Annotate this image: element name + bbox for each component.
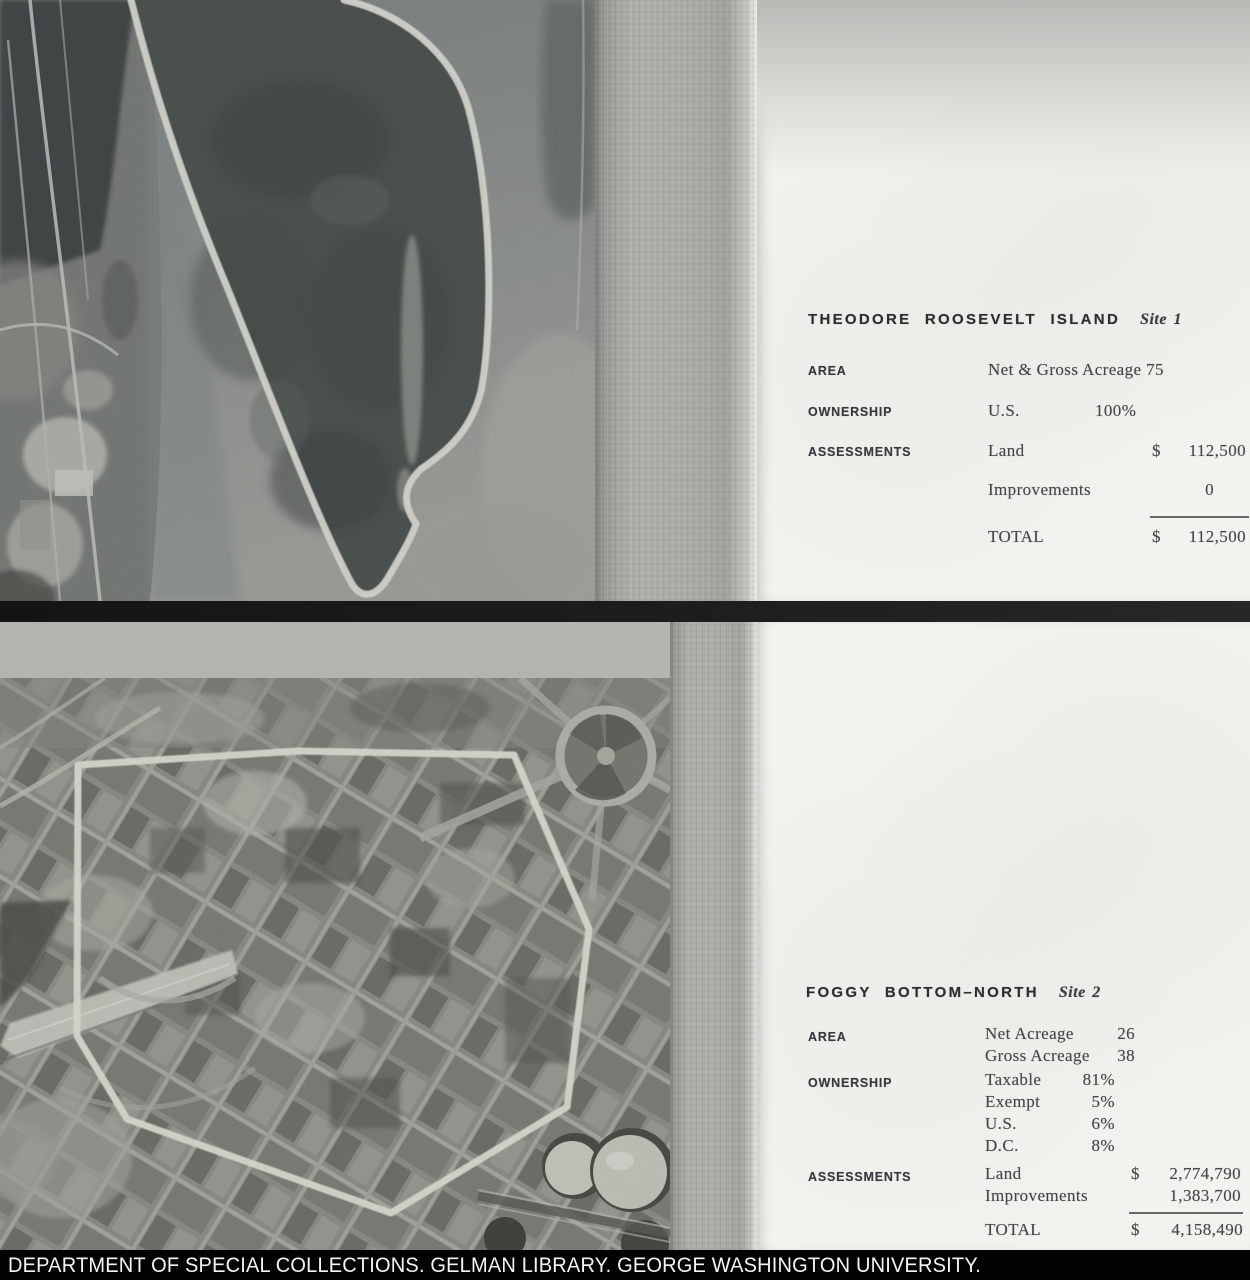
aerial-photo-foggy-bottom: [0, 678, 670, 1250]
site1-assessments-label: ASSESSMENTS: [808, 445, 911, 459]
site2-area-label: AREA: [808, 1030, 847, 1044]
site2-number: Site 2: [1059, 984, 1101, 1001]
site2-heading: FOGGY BOTTOM–NORTHSite 2: [806, 984, 1101, 1002]
area-row: Gross Acreage38: [985, 1046, 1135, 1066]
ownership-row: Exempt5%: [985, 1092, 1115, 1112]
site1-ownership-label: OWNERSHIP: [808, 405, 892, 419]
assessment-row-name: Improvements: [988, 480, 1091, 500]
total-rule: [1129, 1212, 1243, 1214]
site1-total-label: TOTAL: [988, 527, 1044, 547]
ownership-row: Taxable81%: [985, 1070, 1115, 1090]
archive-caption-bar: DEPARTMENT OF SPECIAL COLLECTIONS. GELMA…: [0, 1250, 1250, 1280]
site1-area-label: AREA: [808, 364, 847, 378]
site1-total-amount: $112,500: [1152, 527, 1246, 547]
assessment-row-amount: $112,500: [1152, 441, 1246, 461]
site1-heading: THEODORE ROOSEVELT ISLANDSite 1: [808, 311, 1182, 329]
page-divider-band: [0, 601, 1250, 622]
site2-panel: FOGGY BOTTOM–NORTHSite 2 AREA Net Acreag…: [757, 622, 1250, 1250]
scan-margin-strip: [0, 622, 670, 678]
site1-ownership-pct: 100%: [1095, 401, 1136, 421]
area-row: Net Acreage26: [985, 1024, 1135, 1044]
scanned-book-page: THEODORE ROOSEVELT ISLANDSite 1 AREA Net…: [0, 0, 1250, 1280]
site1-area-value: Net & Gross Acreage 75: [988, 360, 1164, 380]
assessment-row-amount: 0: [1152, 480, 1214, 500]
assessment-row-amount: 1,383,700: [1131, 1186, 1241, 1206]
site2-total-label: TOTAL: [985, 1220, 1041, 1240]
site2-assessments-label: ASSESSMENTS: [808, 1170, 911, 1184]
ownership-row: D.C.8%: [985, 1136, 1115, 1156]
total-rule: [1150, 516, 1249, 518]
assessment-row-amount: $2,774,790: [1131, 1164, 1241, 1184]
site1-number: Site 1: [1140, 311, 1182, 328]
assessment-row-name: Land: [985, 1164, 1022, 1184]
archive-caption-text: DEPARTMENT OF SPECIAL COLLECTIONS. GELMA…: [8, 1253, 981, 1278]
book-spine-gutter-bottom: [670, 622, 757, 1250]
site1-panel: THEODORE ROOSEVELT ISLANDSite 1 AREA Net…: [757, 0, 1250, 601]
assessment-row-name: Improvements: [985, 1186, 1088, 1206]
scan-shading: [757, 0, 1250, 175]
site1-ownership-name: U.S.: [988, 401, 1020, 421]
site2-ownership-label: OWNERSHIP: [808, 1076, 892, 1090]
assessment-row-name: Land: [988, 441, 1025, 461]
book-spine-gutter-top: [595, 0, 757, 601]
aerial-photo-roosevelt-island: [0, 0, 595, 601]
ownership-row: U.S.6%: [985, 1114, 1115, 1134]
site2-total-amount: $4,158,490: [1131, 1220, 1243, 1240]
